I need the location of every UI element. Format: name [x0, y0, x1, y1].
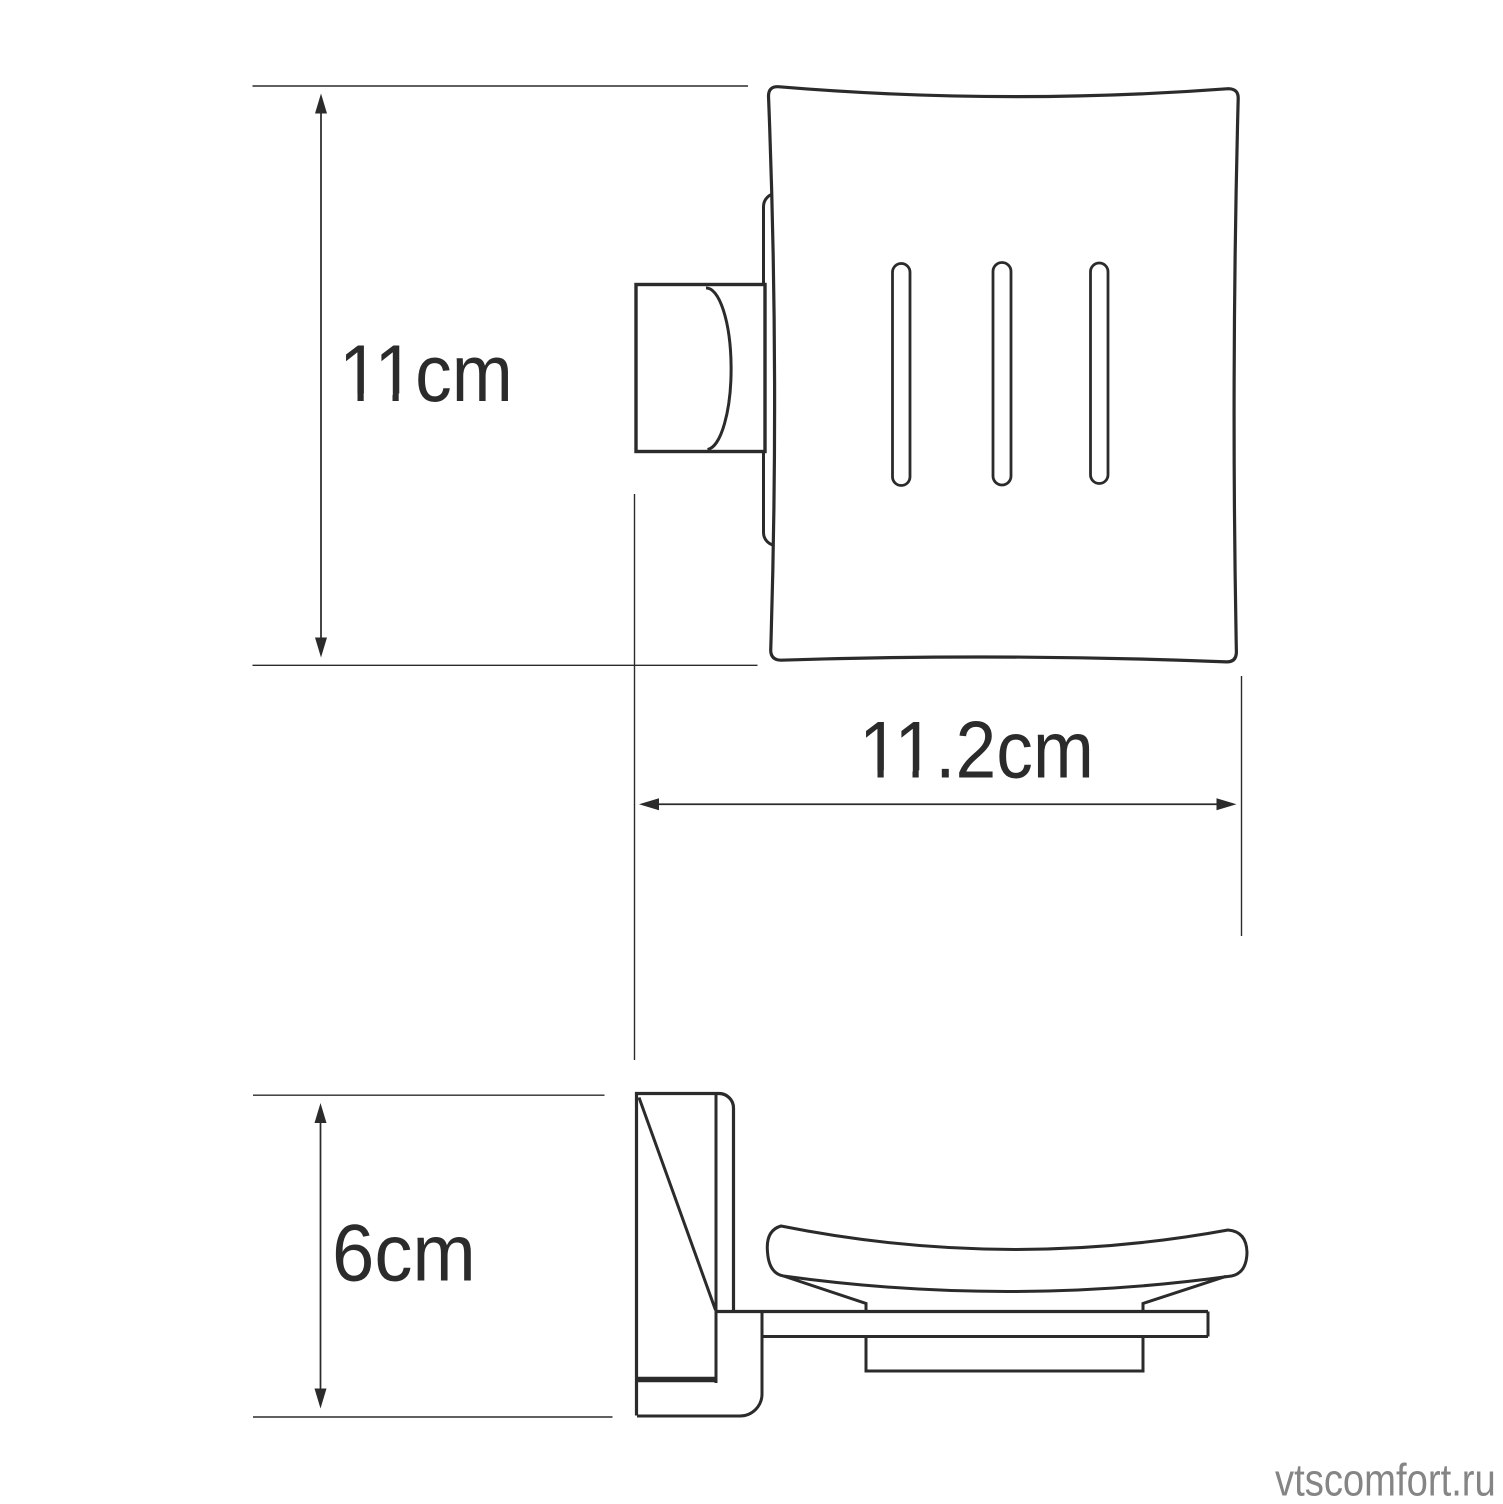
svg-text:6cm: 6cm: [332, 1208, 476, 1299]
svg-text:11cm: 11cm: [339, 328, 513, 418]
svg-text:vtscomfort.ru: vtscomfort.ru: [1275, 1454, 1496, 1504]
svg-text:11.2cm: 11.2cm: [859, 705, 1094, 795]
